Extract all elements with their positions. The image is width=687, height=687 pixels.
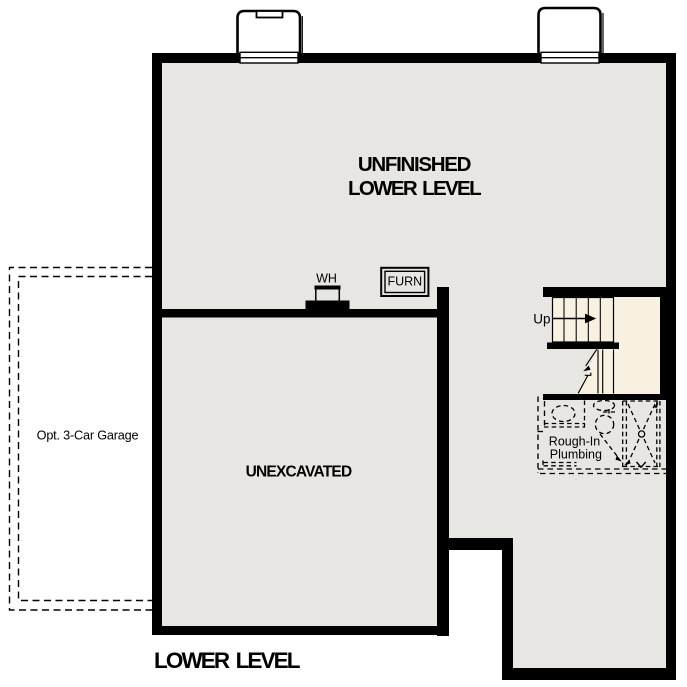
svg-text:Opt. 3-Car Garage: Opt. 3-Car Garage (37, 429, 139, 443)
svg-text:WH: WH (316, 272, 337, 286)
svg-text:Up: Up (533, 312, 550, 327)
svg-text:LOWER LEVEL: LOWER LEVEL (348, 177, 481, 200)
svg-text:UNFINISHED: UNFINISHED (358, 153, 471, 176)
svg-text:UNEXCAVATED: UNEXCAVATED (246, 464, 352, 481)
svg-text:LOWER LEVEL: LOWER LEVEL (154, 648, 301, 673)
svg-text:Rough-In: Rough-In (549, 435, 600, 449)
svg-text:Plumbing: Plumbing (550, 448, 602, 462)
svg-text:FURN: FURN (387, 275, 422, 289)
